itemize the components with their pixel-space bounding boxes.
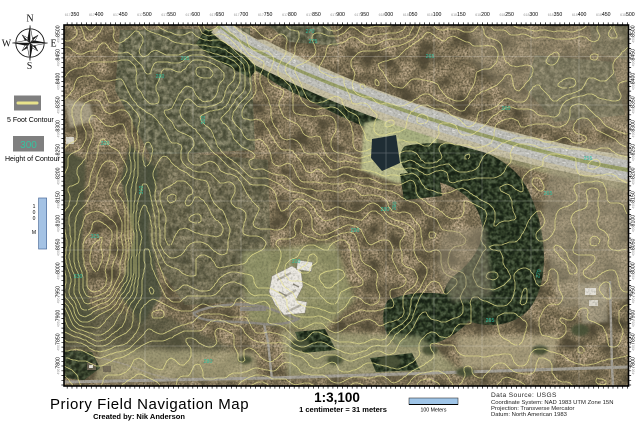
svg-text:M: M — [32, 230, 36, 236]
svg-text:Data Source: USGS: Data Source: USGS — [491, 392, 557, 399]
svg-text:265: 265 — [486, 318, 495, 324]
svg-text:E: E — [50, 39, 56, 50]
svg-text:280: 280 — [392, 201, 399, 210]
svg-text:255: 255 — [584, 156, 593, 162]
svg-text:5 Foot Contour: 5 Foot Contour — [7, 117, 54, 124]
svg-text:310: 310 — [139, 186, 145, 195]
svg-text:300: 300 — [201, 116, 207, 125]
svg-text:Height of Contour: Height of Contour — [5, 156, 61, 163]
svg-text:Priory Field Navigation Map: Priory Field Navigation Map — [50, 396, 249, 413]
svg-text:280: 280 — [204, 359, 213, 365]
svg-text:1 centimeter = 31 meters: 1 centimeter = 31 meters — [299, 405, 387, 414]
svg-text:265: 265 — [426, 54, 435, 60]
svg-text:280: 280 — [381, 207, 390, 213]
svg-text:Datum: North American 1983: Datum: North American 1983 — [491, 412, 568, 418]
svg-text:100 Meters: 100 Meters — [421, 408, 447, 414]
svg-text:300: 300 — [20, 140, 37, 151]
svg-text:260: 260 — [502, 106, 511, 112]
svg-text:S: S — [27, 61, 33, 72]
svg-text:270: 270 — [306, 29, 315, 35]
svg-text:320: 320 — [101, 141, 110, 147]
svg-text:N: N — [26, 14, 33, 25]
svg-text:W: W — [2, 39, 12, 50]
svg-text:290: 290 — [351, 228, 360, 234]
svg-text:310: 310 — [292, 259, 301, 265]
svg-text:Created by: Nik Anderson: Created by: Nik Anderson — [93, 412, 185, 421]
svg-text:280: 280 — [156, 74, 165, 80]
svg-text:0: 0 — [33, 216, 36, 222]
svg-text:330: 330 — [74, 274, 83, 280]
svg-text:265: 265 — [544, 191, 553, 197]
svg-text:1:3,100: 1:3,100 — [314, 390, 360, 405]
svg-text:325: 325 — [91, 234, 100, 240]
svg-text:275: 275 — [309, 39, 318, 45]
